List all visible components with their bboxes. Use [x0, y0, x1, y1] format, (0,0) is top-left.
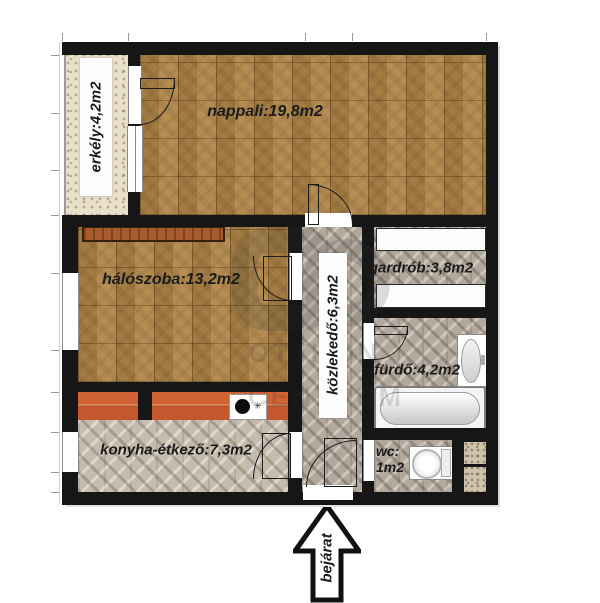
bedroom-floor: [78, 227, 288, 382]
toilet-tank: [441, 449, 451, 477]
kitchen-window: [62, 432, 79, 472]
ruler-tick: [128, 33, 129, 41]
balcony-door-leaf: [140, 78, 175, 89]
ruler-line: [59, 42, 60, 505]
label-balcony: erkély:4,2m2: [88, 82, 105, 173]
entrance-door-leaf: [324, 438, 357, 487]
label-wc: wc: 1m2: [376, 443, 404, 475]
living-hall-door-leaf: [308, 184, 319, 225]
wc-door-opening: [363, 440, 375, 481]
wall: [62, 382, 302, 392]
stove-knob-icon: ✳: [254, 401, 262, 412]
bedroom-door-leaf: [263, 256, 292, 301]
ruler-tick: [486, 33, 487, 41]
bathtub: [374, 386, 486, 431]
ruler-tick: [305, 33, 306, 41]
wall: [62, 215, 486, 227]
ruler-tick: [51, 472, 59, 473]
bathroom-door-leaf: [374, 326, 408, 335]
sink: [457, 334, 487, 387]
outer-shadow: [66, 505, 500, 507]
wall: [362, 428, 486, 440]
label-bedroom: hálószoba:13,2m2: [102, 271, 240, 289]
wall: [62, 492, 498, 505]
wall: [452, 440, 462, 492]
ruler-tick: [51, 170, 59, 171]
ruler-tick: [352, 33, 353, 41]
kitchen-door-leaf: [262, 433, 291, 479]
label-bathroom: fürdő:4,2m2: [374, 362, 460, 379]
stove: ✳: [229, 394, 267, 420]
ruler-tick: [51, 55, 59, 56]
label-kitchen: konyha-étkező:7,3m2: [100, 442, 252, 459]
kitchen-counter-left: [78, 392, 138, 420]
wall: [486, 42, 498, 505]
wall: [62, 42, 498, 55]
wall: [362, 308, 486, 318]
bedroom-window: [62, 273, 79, 350]
toilet: [409, 446, 453, 480]
wardrobe-shelf-top: [376, 228, 486, 251]
floor-plan: ✳: [0, 0, 600, 603]
ruler-tick: [51, 492, 59, 493]
ruler-tick: [51, 432, 59, 433]
label-wardrobe: gardrób:3,8m2: [369, 260, 473, 277]
kitchen-counter-right: [152, 392, 288, 420]
entrance-label: bejárat: [319, 533, 336, 582]
balcony-window: [127, 126, 143, 192]
ruler-tick: [51, 113, 59, 114]
sink-tap-icon: [481, 355, 485, 365]
sink-basin: [461, 339, 481, 383]
outer-shadow: [498, 46, 500, 505]
shaft-divider: [464, 464, 488, 467]
stove-burner-icon: [235, 399, 250, 414]
window-midline: [135, 126, 136, 192]
bathtub-basin: [380, 392, 480, 425]
ruler-tick: [51, 392, 59, 393]
wardrobe-shelf-bottom: [376, 284, 486, 308]
label-wc-line2: 1m2: [376, 459, 404, 475]
ruler-tick: [62, 33, 63, 41]
label-hallway: közlekedő:6,3m2: [325, 275, 342, 395]
toilet-bowl: [412, 449, 442, 479]
entrance-arrow: bejárat: [293, 503, 361, 603]
label-living-room: nappali:19,8m2: [207, 103, 323, 121]
kitchen-door-opening: [289, 432, 303, 478]
wall: [138, 392, 152, 420]
ruler-tick: [51, 215, 59, 216]
entrance-opening: [303, 485, 353, 500]
label-wc-line1: wc:: [376, 443, 404, 459]
bedroom-wardrobe-strip: [82, 226, 225, 242]
ruler-tick: [51, 273, 59, 274]
ruler-tick: [51, 350, 59, 351]
